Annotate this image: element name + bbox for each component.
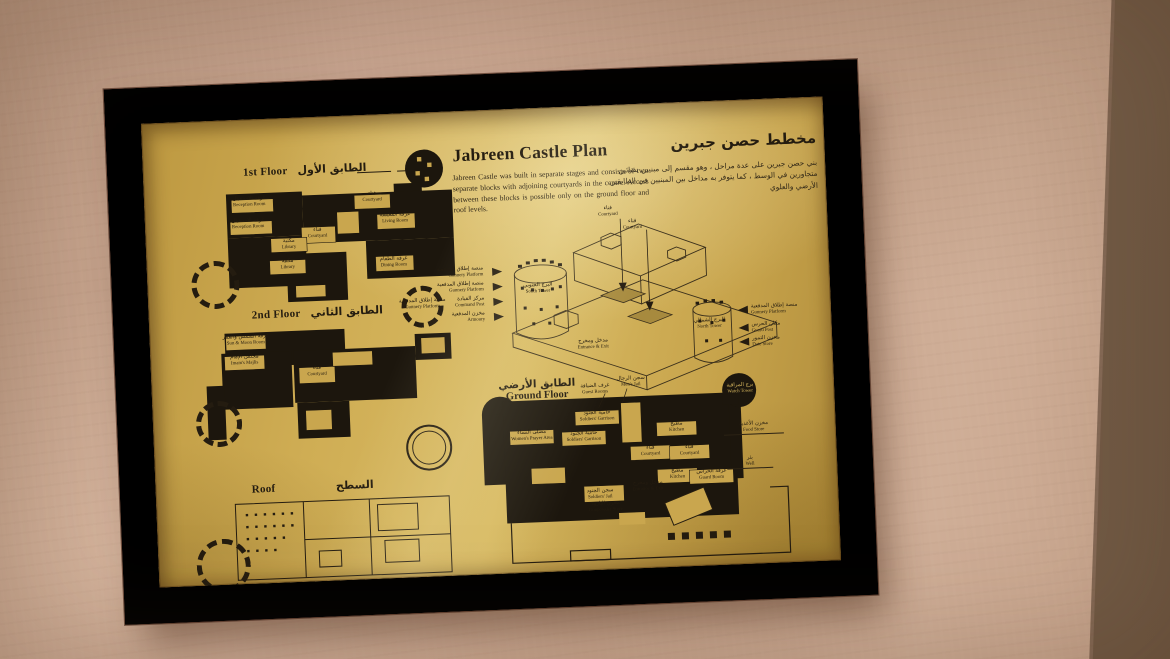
photo-vignette	[0, 0, 1170, 659]
photo: Jabreen Castle Plan Jabreen Castle was b…	[0, 0, 1170, 659]
